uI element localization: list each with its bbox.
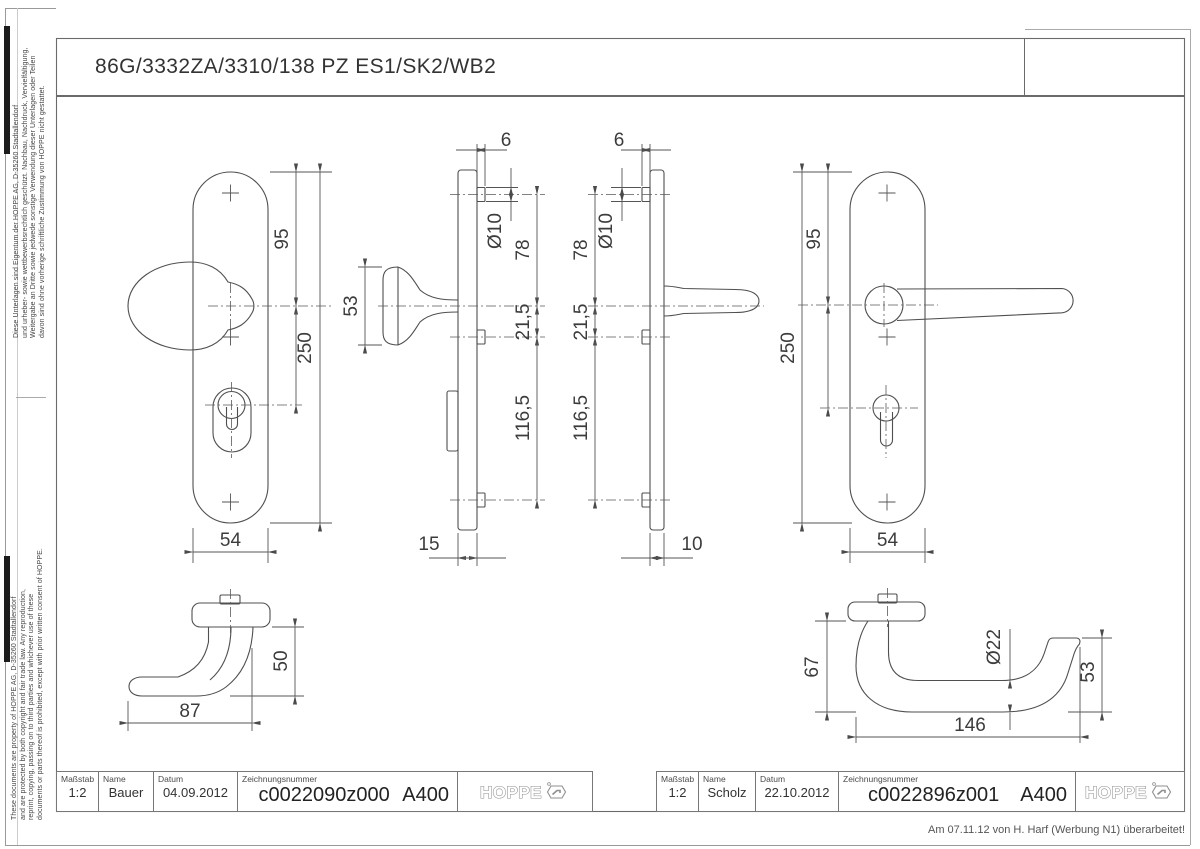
name-cell: Name Bauer	[99, 772, 154, 811]
extension-lines	[611, 144, 664, 566]
center-lines	[798, 283, 938, 458]
dim-label-87: 87	[179, 701, 200, 722]
drawing-number-value: c0022896z001	[853, 784, 1014, 807]
drawing-sheet: Diese Unterlagen sind Eigentum der HOPPE…	[0, 0, 1200, 849]
plate-profile	[458, 170, 477, 530]
dim-label-67: 67	[802, 656, 823, 677]
name-cell: Name Scholz	[699, 772, 756, 811]
dim-label-146: 146	[954, 715, 986, 736]
scale-cell: Maßstab 1:2	[57, 772, 99, 811]
date-value: 04.09.2012	[154, 785, 237, 800]
dim-label-250: 250	[295, 332, 316, 364]
keyhole-slot	[881, 412, 893, 446]
dim-label-78: 78	[513, 239, 534, 260]
dim-label-78: 78	[571, 239, 592, 260]
title-block-left: Maßstab 1:2 Name Bauer Datum 04.09.2012 …	[56, 771, 593, 812]
dim-label-dia10: Ø10	[485, 213, 506, 249]
hoppe-logo: HOPPE	[1083, 780, 1177, 804]
lever-profile	[664, 286, 759, 316]
date-value: 22.10.2012	[756, 785, 838, 800]
dim-label-50: 50	[271, 650, 292, 671]
trademark-icon	[1153, 782, 1156, 785]
dim-label-250: 250	[778, 332, 799, 364]
dim-label-116-5: 116,5	[513, 395, 534, 441]
date-cell: Datum 22.10.2012	[756, 772, 839, 811]
dim-label-21-5: 21,5	[571, 304, 592, 341]
title-block-right: Maßstab 1:2 Name Scholz Datum 22.10.2012…	[656, 771, 1185, 812]
drawing-number-cell: Zeichnungsnummer c0022896z001 A400	[839, 772, 1076, 811]
cylinder-recess	[213, 388, 251, 452]
dim-label-15: 15	[418, 534, 439, 555]
dim-label-95: 95	[272, 228, 293, 249]
drawing-title: 86G/3332ZA/3310/138 PZ ES1/SK2/WB2	[57, 55, 496, 79]
dim-label-95: 95	[804, 228, 825, 249]
drawing-number-label: Zeichnungsnummer	[839, 772, 1075, 784]
svg-text:HOPPE: HOPPE	[1085, 783, 1147, 802]
lever-grip-outline	[856, 621, 1080, 712]
dim-label-6: 6	[501, 130, 512, 151]
view-knob-profile: 50 87	[128, 589, 304, 731]
extension-lines	[358, 144, 518, 566]
view-knob-plate-side: 6 Ø10 78 21,5 116,5 53 15	[341, 130, 545, 566]
dim-label-53: 53	[341, 295, 362, 316]
technical-drawing: 95 250 54 6 Ø10	[0, 0, 1200, 849]
extension-lines	[128, 627, 304, 731]
hoppe-logo: HOPPE	[478, 780, 572, 804]
knob-grip-outline	[129, 627, 253, 696]
drawing-number-label: Zeichnungsnummer	[238, 772, 457, 784]
scale-value: 1:2	[57, 785, 98, 800]
lever-rose	[848, 602, 925, 621]
dim-label-6: 6	[614, 130, 625, 151]
logo-cell: HOPPE	[458, 772, 592, 811]
dim-label-dia10: Ø10	[596, 213, 617, 249]
svg-text:HOPPE: HOPPE	[480, 783, 542, 802]
date-cell: Datum 04.09.2012	[154, 772, 238, 811]
dim-label-10: 10	[681, 534, 702, 555]
logo-cell: HOPPE	[1076, 772, 1184, 811]
title-bar-end-cell	[1024, 39, 1184, 95]
name-label: Name	[699, 772, 755, 784]
view-knob-plate-front: 95 250 54	[128, 172, 332, 563]
cylinder-housing	[447, 391, 458, 451]
knob-rose	[192, 603, 270, 627]
lever-outline	[897, 289, 1073, 321]
dim-label-21-5: 21,5	[513, 304, 534, 341]
dim-label-116-5: 116,5	[571, 395, 592, 441]
drawing-number-value: c0022090z000	[252, 784, 396, 807]
screw-cross	[879, 185, 896, 511]
screw-cross	[222, 185, 239, 511]
scale-value: 1:2	[657, 785, 698, 800]
drawing-number-cell: Zeichnungsnummer c0022090z000 A400	[238, 772, 458, 811]
trademark-icon	[548, 782, 551, 785]
revision-note: Am 07.11.12 von H. Harf (Werbung N1) übe…	[700, 824, 1185, 836]
dim-label-53: 53	[1078, 661, 1099, 682]
dim-label-54: 54	[220, 530, 242, 551]
dim-label-dia22: Ø22	[984, 629, 1005, 665]
view-lever-plate-side: 6 Ø10 78 21,5 116,5 10	[571, 130, 764, 566]
name-value: Bauer	[99, 785, 153, 800]
dim-label-54: 54	[877, 530, 899, 551]
view-lever-handle-profile: 67 Ø22 53 146	[802, 588, 1112, 743]
plate-outline	[193, 172, 268, 523]
view-lever-plate-front: 250 95 54	[778, 172, 1073, 563]
plate-outline	[850, 172, 925, 523]
name-value: Scholz	[699, 785, 755, 800]
plate-profile	[650, 170, 664, 530]
date-label: Datum	[154, 772, 237, 784]
title-bar: 86G/3332ZA/3310/138 PZ ES1/SK2/WB2	[56, 38, 1185, 96]
sheet-code: A400	[1014, 784, 1067, 807]
knob-grip-contour	[210, 627, 231, 680]
drawing-frame	[57, 39, 1185, 812]
date-label: Datum	[756, 772, 838, 784]
sheet-code: A400	[396, 784, 449, 807]
scale-label: Maßstab	[57, 772, 98, 784]
scale-cell: Maßstab 1:2	[657, 772, 699, 811]
scale-label: Maßstab	[657, 772, 698, 784]
name-label: Name	[99, 772, 153, 784]
